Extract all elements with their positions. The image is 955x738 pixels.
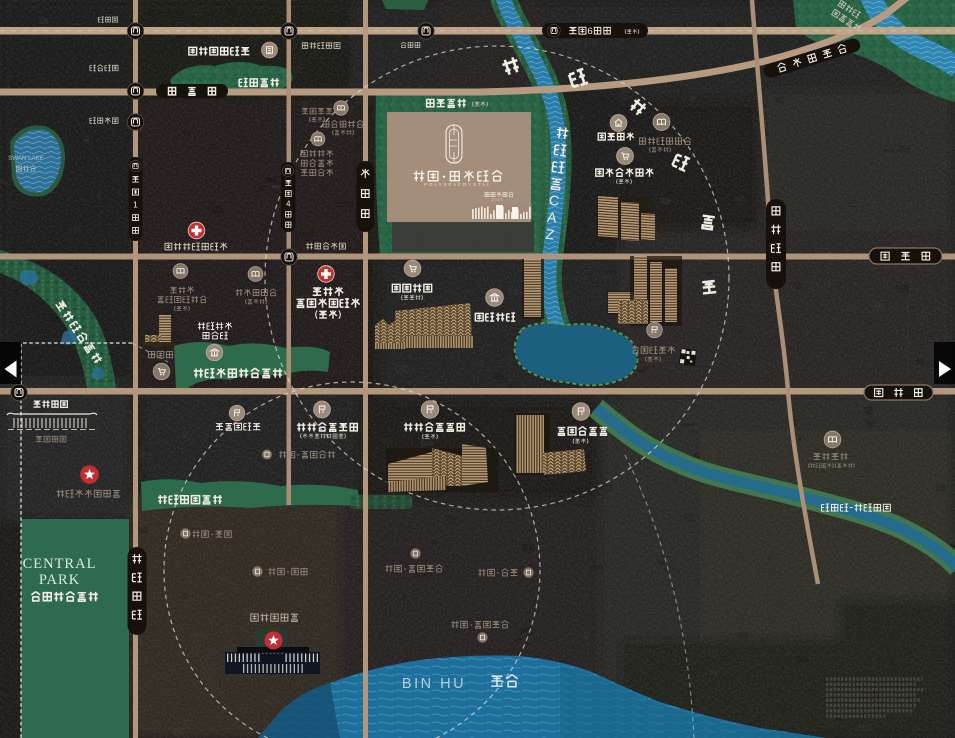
svg-text:CENTRAL: CENTRAL: [23, 556, 97, 572]
svg-text:PARK: PARK: [39, 572, 80, 588]
svg-text:6: 6: [587, 26, 592, 37]
svg-text:C: C: [548, 192, 560, 209]
svg-text:1: 1: [133, 199, 138, 209]
svg-text:2 0 2 3: 2 0 2 3: [492, 198, 503, 202]
svg-text:P O L Y S E A C R Y S T A: P O L Y S E A C R Y S T A L: [424, 182, 490, 187]
svg-text:4: 4: [286, 199, 291, 208]
svg-text:BIN HU: BIN HU: [402, 676, 466, 692]
svg-text:SWAN LAKE: SWAN LAKE: [8, 155, 44, 162]
